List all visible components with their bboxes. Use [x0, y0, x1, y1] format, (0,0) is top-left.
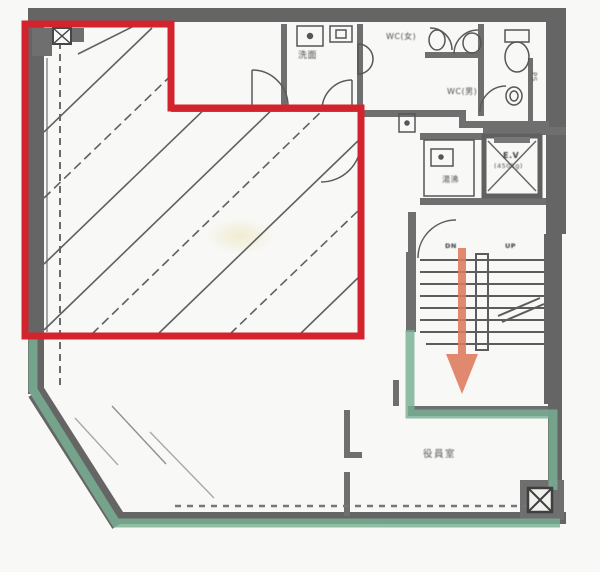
floor-plan-scan: 洗面 WC(女) WC(男) PS E.V (450kg) 湯沸 DN UP 役… [0, 0, 600, 572]
floor-plan-drawing [0, 0, 600, 572]
stairs-up-label: UP [505, 243, 516, 250]
stairs-down-label: DN [445, 243, 457, 250]
door-arcs [252, 28, 506, 258]
elevator-label: E.V [503, 152, 519, 160]
toilet-icon [505, 42, 529, 72]
highlight-green-boundary [33, 330, 560, 523]
stair-stringer [476, 254, 488, 350]
kitchenette-label: 湯沸 [442, 176, 459, 184]
pipe-shaft-label: PS [530, 72, 537, 82]
wc-women-label: WC(女) [386, 33, 416, 41]
pipe-shaft-icon [53, 28, 71, 44]
outer-walls [28, 8, 566, 524]
washroom-label: 洗面 [298, 52, 317, 61]
elevator-capacity-label: (450kg) [494, 163, 523, 170]
hatch-lines [44, 26, 361, 336]
office-room-label: 役員室 [423, 450, 456, 460]
staircase [420, 254, 544, 350]
toilet-icon [429, 30, 445, 50]
highlight-red-region [25, 24, 361, 336]
wc-men-label: WC(男) [447, 88, 477, 96]
urinal-icon [506, 87, 522, 105]
pipe-shaft-icon [528, 488, 552, 512]
